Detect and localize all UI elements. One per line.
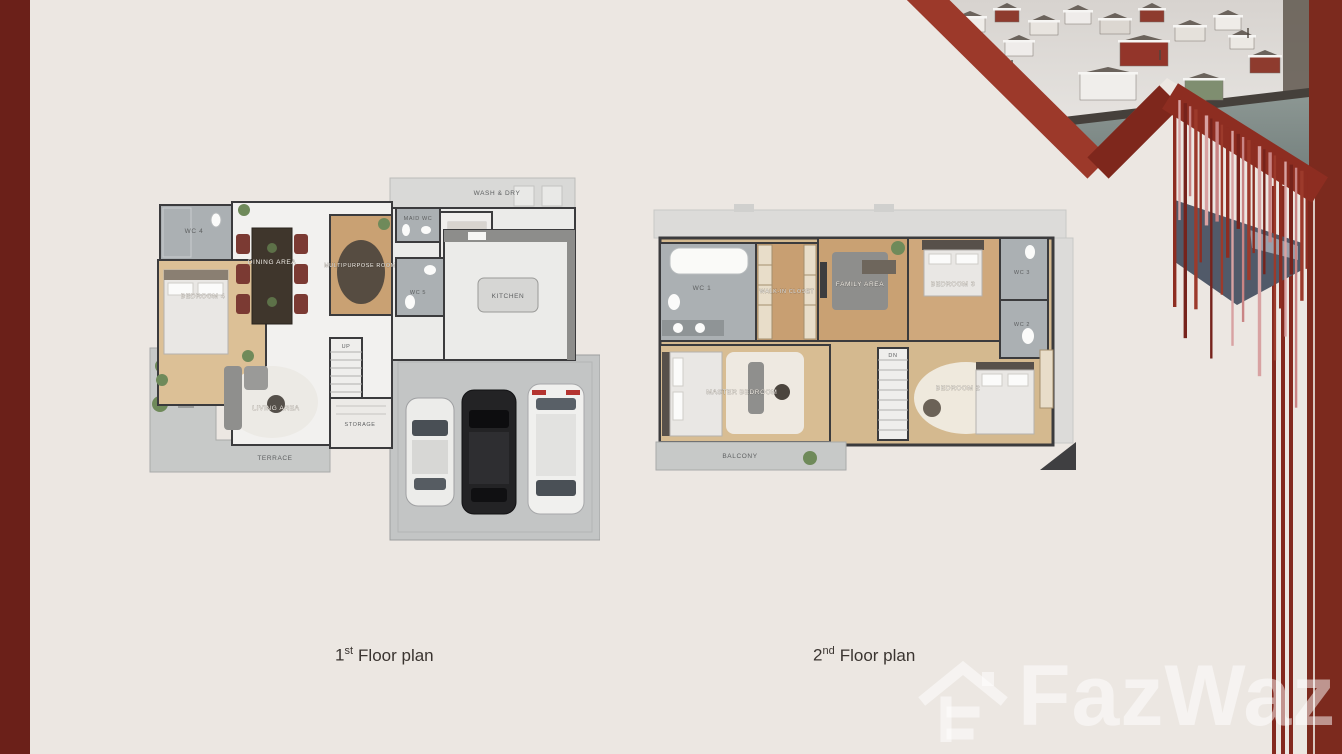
- caption1-text: Floor plan: [358, 646, 434, 665]
- stairs-down: DN: [878, 348, 908, 440]
- caption1-ordinal: st: [344, 645, 353, 657]
- room-maid-wc: MAID WC: [396, 208, 440, 242]
- room-wc2: WC 2: [1000, 300, 1048, 358]
- room-label-maid-wc: MAID WC: [404, 216, 433, 222]
- room-balcony: BALCONY: [656, 442, 846, 470]
- car-black-suv: [462, 390, 516, 514]
- floor-plan-1: WASH & DRY: [148, 170, 600, 542]
- room-label-kitchen: KITCHEN: [492, 293, 525, 300]
- room-label-family: FAMILY AREA: [836, 281, 884, 288]
- room-label-wc2: WC 2: [1014, 322, 1030, 328]
- room-wc3: WC 3: [1000, 238, 1048, 300]
- room-kitchen: KITCHEN: [444, 230, 575, 360]
- garage-area: [390, 355, 600, 540]
- caption-floor2: 2ndFloor plan: [813, 645, 915, 666]
- room-storage: STORAGE: [330, 398, 392, 448]
- room-family-area: FAMILY AREA: [818, 238, 908, 341]
- room-label-wc5: WC 5: [410, 290, 426, 296]
- room-label-multipurpose: MULTIPURPOSE ROOM: [324, 263, 396, 269]
- room-label-wc4: WC 4: [185, 228, 204, 235]
- room-wc1: WC 1: [660, 243, 756, 341]
- caption2-text: Floor plan: [840, 646, 916, 665]
- car-white-suv: [528, 384, 584, 514]
- room-label-bedroom3: BEDROOM 3: [931, 281, 975, 288]
- room-label-master: MASTER BEDROOM: [707, 389, 778, 396]
- room-label-bedroom4: BEDROOM 4: [181, 293, 225, 300]
- caption-floor1: 1stFloor plan: [335, 645, 434, 666]
- room-label-wash-dry: WASH & DRY: [474, 190, 521, 197]
- room-wc5: WC 5: [396, 258, 444, 316]
- room-label-living: LIVING AREA: [252, 405, 299, 412]
- room-bedroom3: BEDROOM 3: [908, 238, 1000, 341]
- room-multipurpose: MULTIPURPOSE ROOM: [324, 215, 396, 315]
- room-label-bedroom2: BEDROOM 2: [936, 385, 980, 392]
- room-wc4: WC 4: [160, 205, 232, 260]
- room-master-bedroom: MASTER BEDROOM: [660, 345, 830, 442]
- room-label-balcony: BALCONY: [722, 453, 757, 460]
- page-canvas: WASH & DRY: [0, 0, 1342, 754]
- caption2-ordinal: nd: [822, 645, 834, 657]
- room-label-wc1: WC 1: [693, 285, 712, 292]
- room-label-storage: STORAGE: [345, 422, 376, 428]
- car-white-sedan: [406, 398, 454, 506]
- room-label-up: UP: [342, 344, 351, 350]
- room-label-terrace: TERRACE: [257, 455, 292, 462]
- floor-plan-2: WC 1 WALK-IN CLOSET FAMILY AREA: [648, 200, 1078, 475]
- room-walk-in-closet: WALK-IN CLOSET: [756, 243, 818, 341]
- room-label-wc3: WC 3: [1014, 270, 1030, 276]
- room-label-walk-in: WALK-IN CLOSET: [760, 289, 815, 295]
- room-label-dining: DINING AREA: [248, 259, 297, 266]
- room-label-dn: DN: [888, 353, 897, 359]
